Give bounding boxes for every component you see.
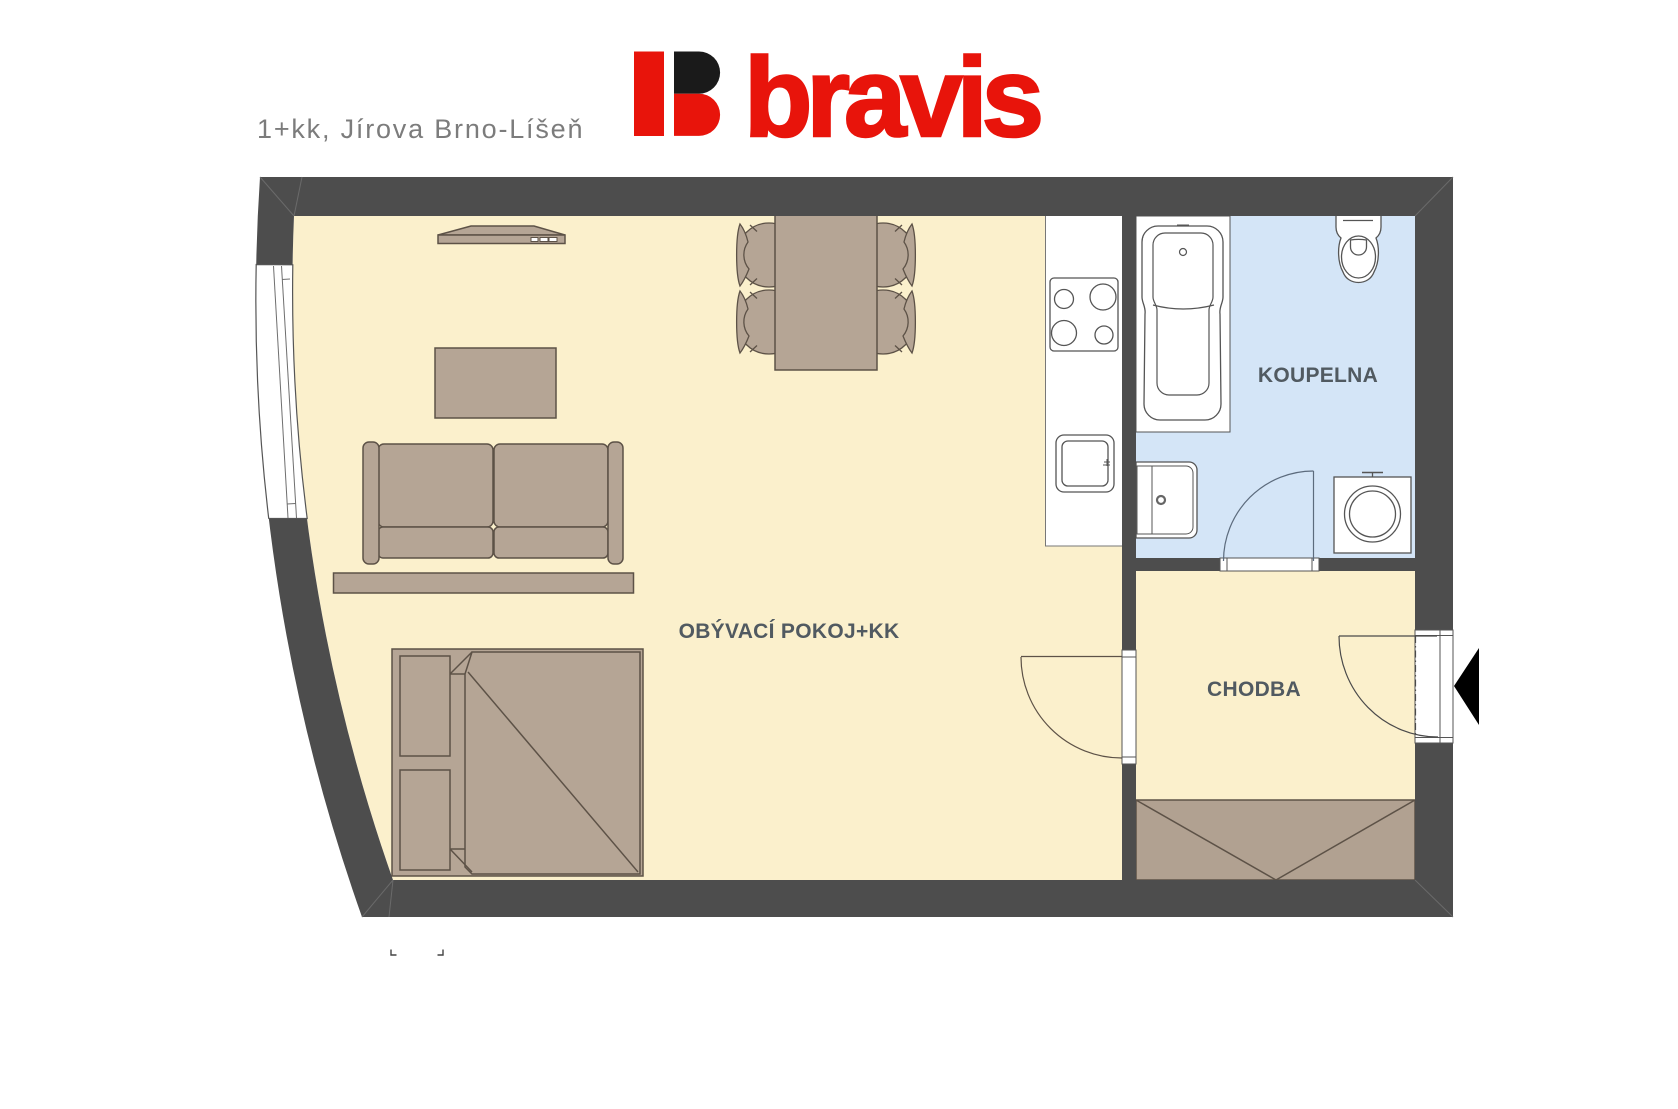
- svg-text:1+kk, Jírova Brno-Líšeň: 1+kk, Jírova Brno-Líšeň: [257, 114, 584, 144]
- svg-text:bravis: bravis: [744, 35, 1040, 160]
- svg-text:CHODBA: CHODBA: [1207, 678, 1301, 701]
- svg-text:OBÝVACÍ POKOJ+KK: OBÝVACÍ POKOJ+KK: [679, 619, 900, 643]
- svg-text:KOUPELNA: KOUPELNA: [1258, 364, 1378, 387]
